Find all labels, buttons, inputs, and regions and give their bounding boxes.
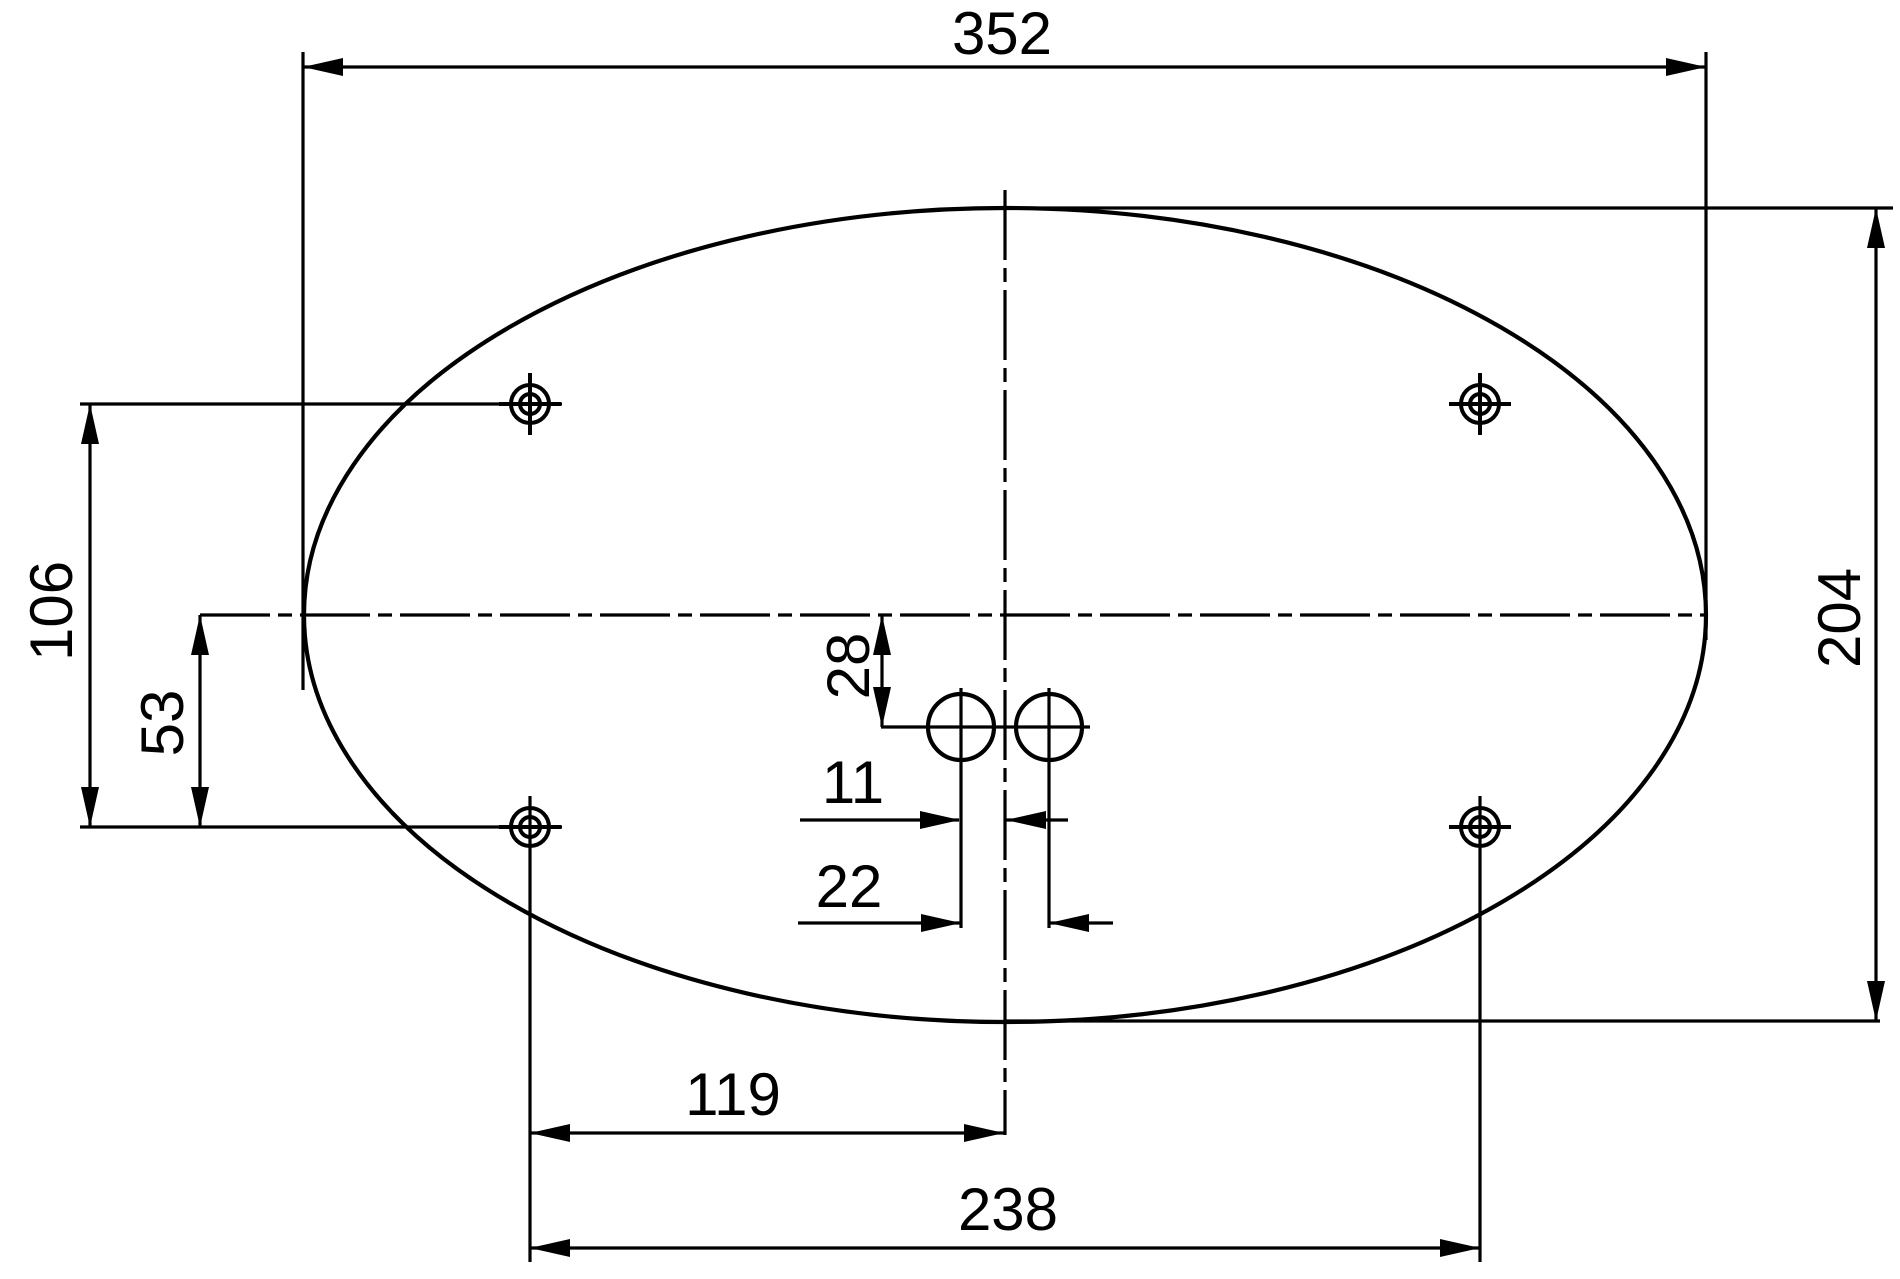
dimension-centerline-to-hole-row: 53 <box>129 615 209 827</box>
oval-plate-dimension-drawing: 352 204 106 53 28 11 <box>0 0 1900 1279</box>
dimension-label-119: 119 <box>685 1061 781 1128</box>
hole-target-top-right <box>1449 373 1511 435</box>
dimension-label-352: 352 <box>952 0 1052 67</box>
dimension-small-holes-spacing: 22 <box>798 853 1113 932</box>
dimension-centerline-to-small-holes: 28 <box>815 615 891 727</box>
dimension-label-106: 106 <box>18 561 85 661</box>
dimension-label-238: 238 <box>958 1176 1058 1243</box>
technical-drawing-canvas: 352 204 106 53 28 11 <box>0 0 1900 1279</box>
dimension-small-hole-to-centerline: 11 <box>800 749 1068 829</box>
dimension-label-204: 204 <box>1806 568 1873 668</box>
dimension-label-11: 11 <box>822 749 884 816</box>
dimension-label-22: 22 <box>816 853 883 920</box>
dimension-label-28: 28 <box>815 633 882 700</box>
dimension-bottom-hole-to-centerline: 119 <box>530 796 1004 1262</box>
dimension-label-53: 53 <box>129 690 196 757</box>
